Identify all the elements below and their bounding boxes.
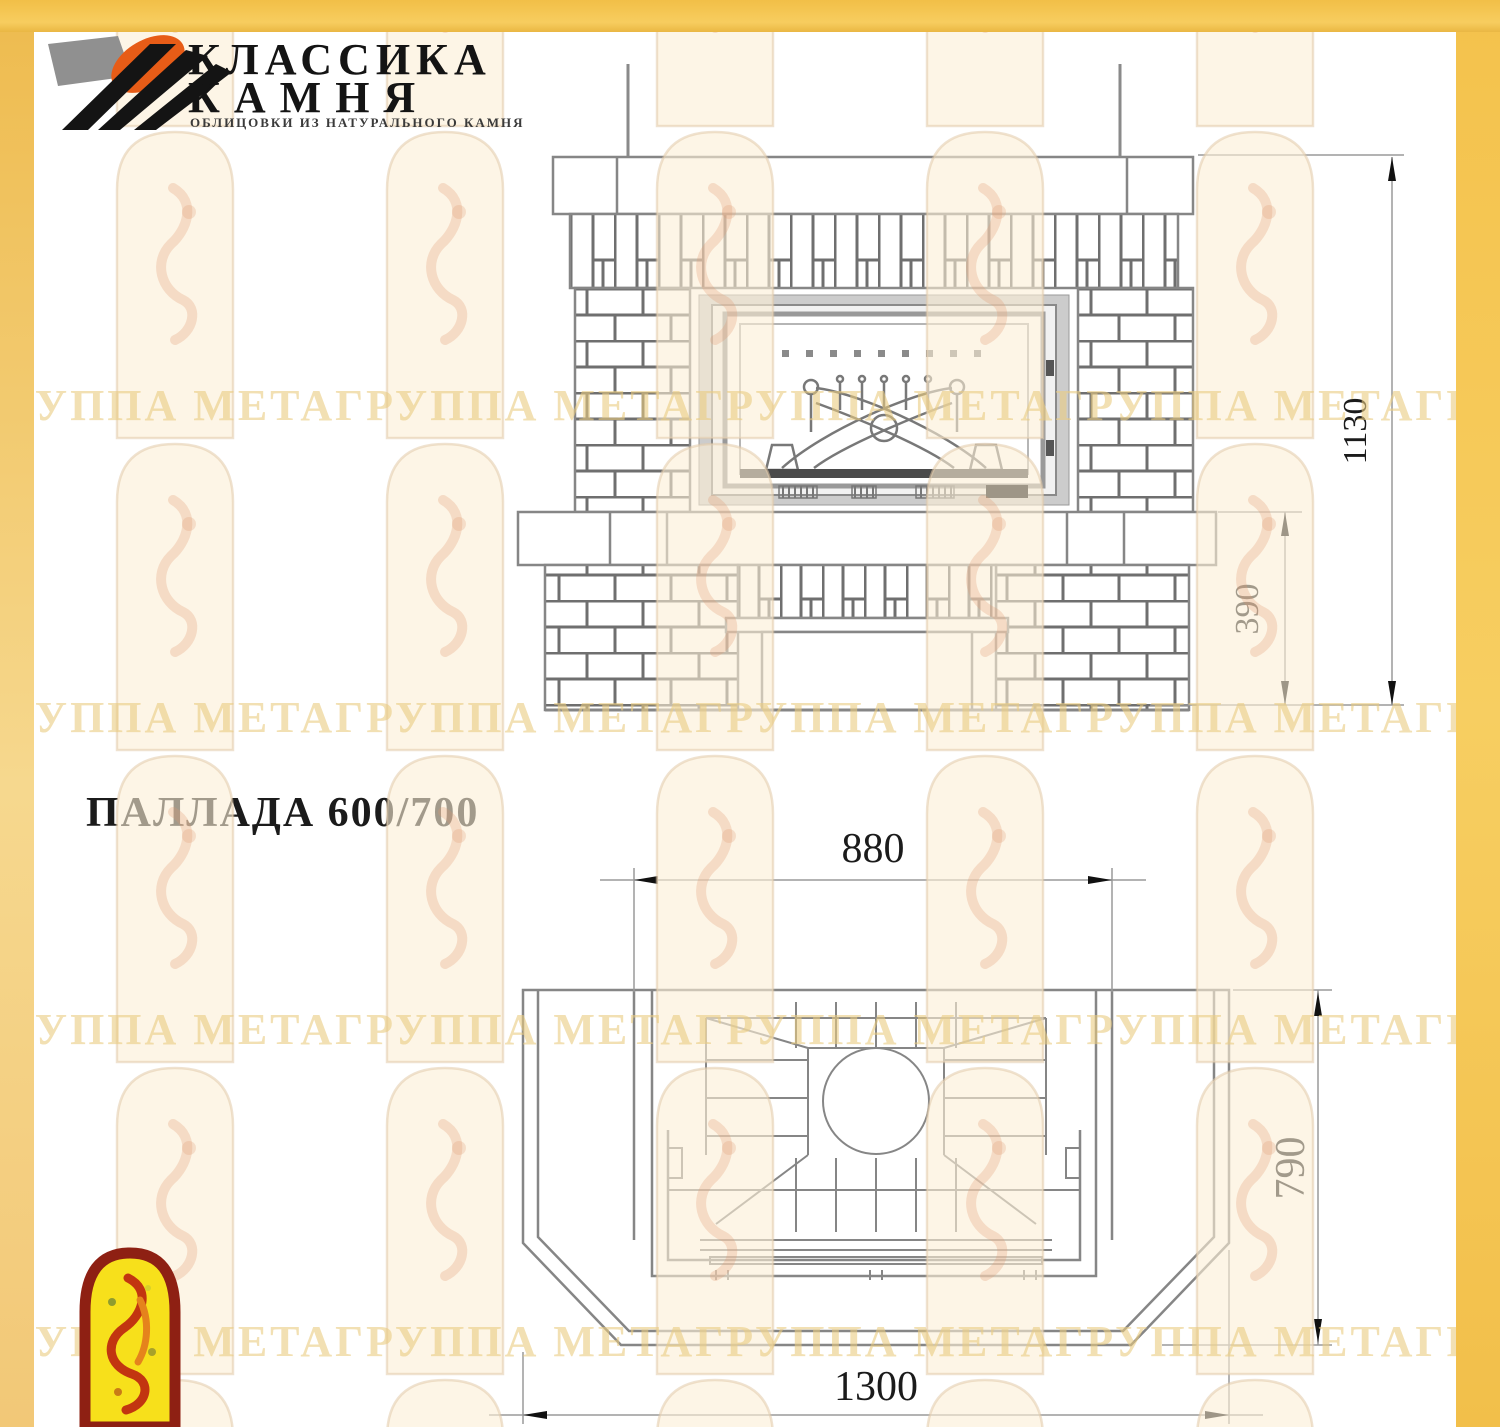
page: 1130 390 [0,0,1500,1427]
frame-band-top [0,0,1500,32]
company-tagline: ОБЛИЦОВКИ ИЗ НАТУРАЛЬНОГО КАМНЯ [190,115,525,130]
arch-emblem [85,1253,175,1427]
frame-band-right [1456,0,1500,1427]
logos-layer: КЛАССИКА КАМНЯ ОБЛИЦОВКИ ИЗ НАТУРАЛЬНОГО… [0,0,1500,1427]
company-logo: КЛАССИКА КАМНЯ ОБЛИЦОВКИ ИЗ НАТУРАЛЬНОГО… [48,23,525,130]
frame-band-left [0,0,34,1427]
